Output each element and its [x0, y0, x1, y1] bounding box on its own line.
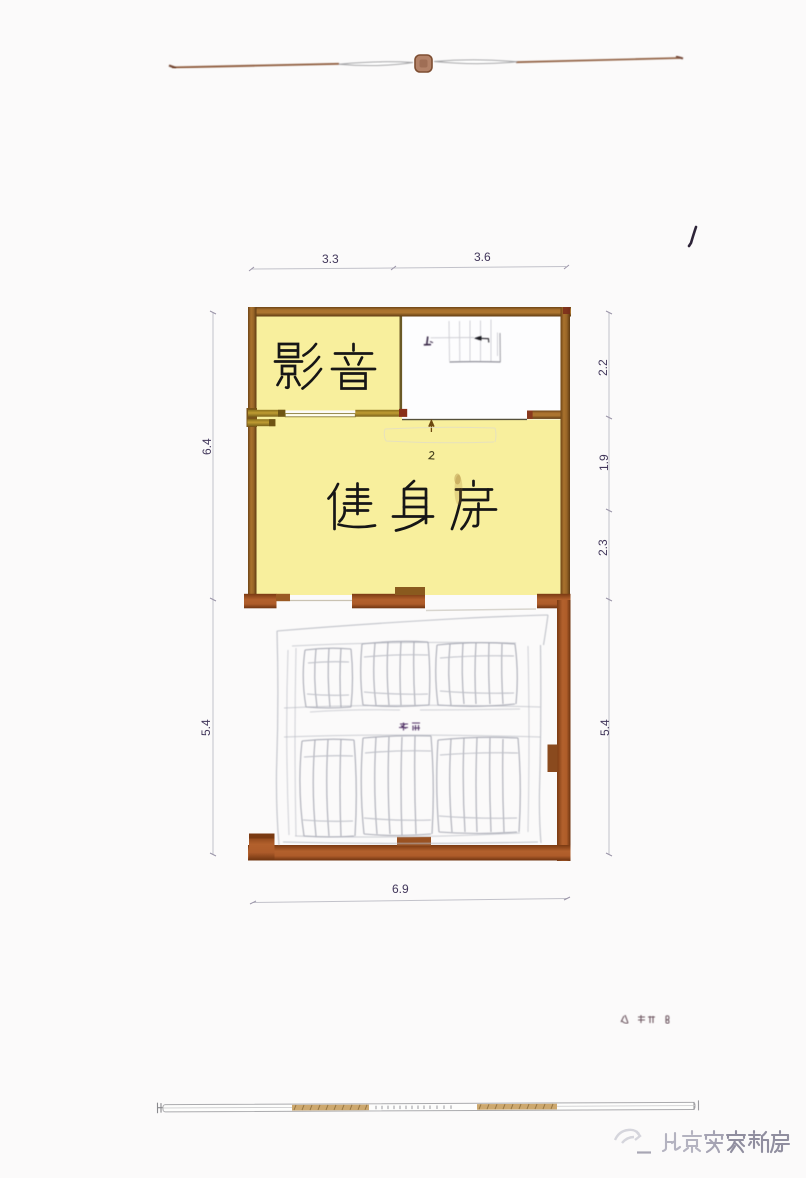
svg-text:5.4: 5.4	[199, 719, 213, 736]
svg-text:6.4: 6.4	[200, 438, 214, 455]
svg-text:6.9: 6.9	[392, 882, 409, 896]
svg-text:2.2: 2.2	[596, 359, 610, 376]
svg-text:5.4: 5.4	[598, 719, 612, 736]
svg-text:3.3: 3.3	[322, 252, 339, 266]
svg-text:2.3: 2.3	[596, 539, 610, 556]
svg-text:1.9: 1.9	[597, 454, 611, 471]
svg-text:3.6: 3.6	[474, 250, 491, 264]
